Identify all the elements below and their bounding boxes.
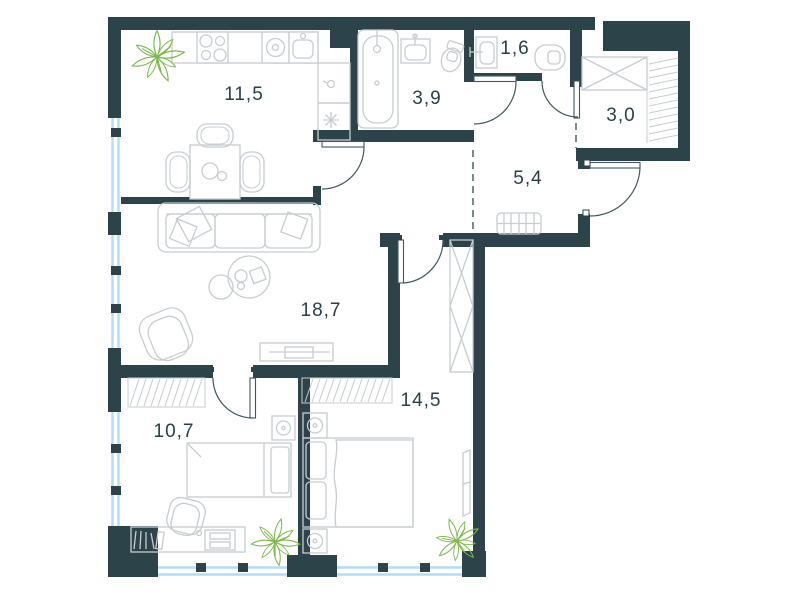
room-label-hallway: 5,4	[513, 168, 542, 189]
room-label-wardrobe-niche: 3,0	[606, 105, 635, 126]
double-bed	[303, 438, 413, 527]
washing-machine-icon	[262, 32, 289, 63]
area-boundary-dashed-lines	[473, 87, 576, 233]
room-label-toilet: 1,6	[500, 38, 529, 59]
plant-icon-kitchen	[131, 31, 184, 82]
closet-hatched-small-bedroom	[128, 378, 205, 407]
bathtub-icon	[358, 30, 398, 128]
floorplan-page: 11,5 3,9 1,6 3,0 5,4 18,7 14,5 10,7	[0, 0, 800, 600]
closet-hatched-large-bedroom	[302, 378, 392, 403]
armchair	[135, 304, 198, 367]
coffee-tables	[209, 256, 270, 299]
wardrobe-crossed-box	[582, 57, 647, 90]
nightstand-small-bedroom	[272, 416, 295, 440]
tv-stand	[260, 343, 333, 361]
door-kitchen	[322, 142, 364, 190]
room-label-living-room: 18,7	[301, 300, 342, 321]
door-entrance	[583, 160, 640, 216]
door-bathroom	[474, 76, 516, 124]
walls	[108, 17, 690, 577]
kettle-icon	[323, 81, 335, 88]
single-bed	[187, 443, 291, 497]
room-label-bedroom-small: 10,7	[154, 421, 195, 442]
floorplan-canvas: 11,5 3,9 1,6 3,0 5,4 18,7 14,5 10,7	[0, 0, 800, 600]
wardrobe-rail-hatch	[647, 57, 678, 143]
dining-table	[190, 145, 240, 199]
mirror-icon	[463, 450, 470, 516]
windows	[111, 118, 462, 575]
shoe-rack-icon	[497, 213, 541, 234]
kitchen-sink-icon	[289, 32, 318, 63]
door-bedroom-large	[396, 235, 445, 283]
corridor-wardrobe-crossed	[450, 240, 473, 372]
sofa	[158, 203, 320, 252]
room-label-kitchen: 11,5	[224, 84, 264, 105]
room-label-bathroom: 3,9	[412, 88, 441, 109]
door-bedroom-small	[209, 367, 256, 418]
toilet-icon-bathroom	[438, 40, 465, 74]
bathroom-sink-icon	[401, 34, 430, 63]
room-label-bedroom-large: 14,5	[401, 390, 442, 411]
fridge-snowflake-icon	[323, 112, 339, 128]
door-toilet	[542, 81, 580, 118]
window-mullions	[111, 128, 430, 572]
toilet-sink-icon	[470, 37, 497, 68]
toilet-icon-wc	[535, 45, 565, 70]
stove-icon	[197, 32, 228, 63]
